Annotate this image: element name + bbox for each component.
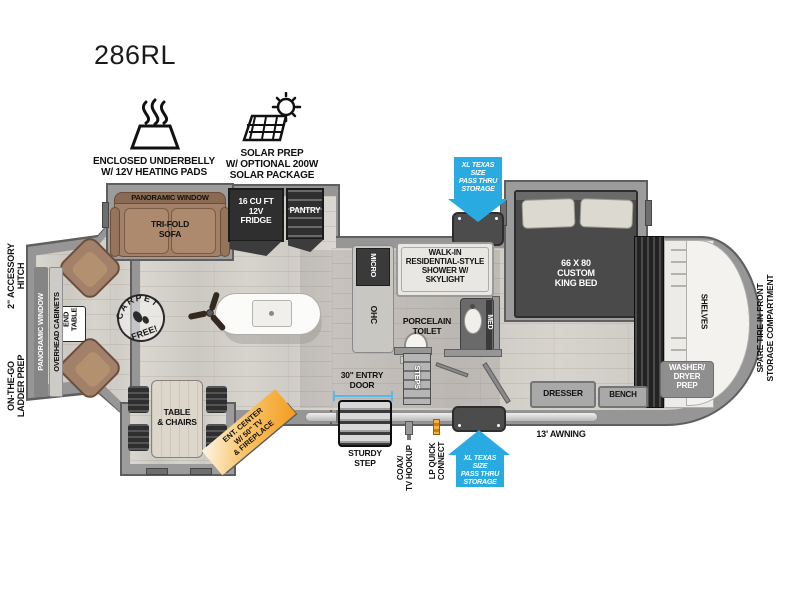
pass-thru-top-arrow-body: XL TEXAS SIZE PASS THRU STORAGE	[454, 157, 502, 199]
recliner-bottom-cushion	[73, 350, 113, 390]
heating-pads-icon	[126, 96, 184, 152]
wall-bath-south	[444, 349, 502, 357]
fridge-label: 16 CU FT 12V FRIDGE	[228, 197, 284, 226]
dinette-chair-1	[128, 386, 149, 413]
pass-thru-bottom-latch-2	[497, 424, 500, 427]
overhead-cabinets-strip: OVERHEAD CABINETS	[49, 267, 63, 397]
shelves-label: SHELVES	[699, 285, 708, 337]
entry-door-dim-tick-left	[333, 391, 335, 401]
floorplan-286rl: 286RL ENCLOSED UNDERBELLY W/ 12V HEATING…	[0, 0, 800, 600]
washer-dryer-label: WASHER/ DRYER PREP	[660, 364, 714, 391]
pass-thru-top-label: XL TEXAS SIZE PASS THRU STORAGE	[454, 162, 502, 194]
lp-label: LP QUICK CONNECT	[429, 433, 451, 489]
coax-connector-icon	[405, 421, 413, 435]
pass-thru-bottom-arrow-body: XL TEXAS SIZE PASS THRU STORAGE	[456, 455, 504, 487]
pass-thru-bottom-box	[452, 406, 506, 432]
recliner-top-cushion	[70, 250, 110, 290]
dresser-label: DRESSER	[530, 389, 596, 399]
ohc-label: OHC	[368, 295, 378, 335]
entry-door-dimension-line	[334, 395, 392, 397]
bench-label: BENCH	[598, 391, 648, 400]
ladder-prep-label: ON-THE-GO LADDER PREP	[6, 334, 30, 438]
bed-pillow-left	[522, 198, 576, 229]
page-title: 286RL	[94, 40, 176, 71]
bed-slide-window-right	[645, 200, 652, 226]
coax-label: COAX/ TV HOOKUP	[397, 437, 419, 499]
bed-label: 66 X 80 CUSTOM KING BED	[520, 258, 632, 288]
ceiling-fan-icon	[186, 289, 234, 337]
toilet-label: PORCELAIN TOILET	[396, 317, 458, 336]
dinette-window-right	[190, 468, 212, 475]
sofa-label: TRI-FOLD SOFA	[134, 220, 206, 239]
sturdy-step	[338, 400, 392, 447]
spare-tire-label: SPARE TIRE IN FRONT STORAGE COMPARTMENT	[756, 242, 780, 414]
sofa-armrest-left	[110, 207, 120, 257]
pantry-label: PANTRY	[284, 207, 326, 216]
med-label: MED	[485, 307, 493, 337]
med-faucet	[470, 304, 475, 309]
bed-pillow-right	[580, 198, 634, 229]
accessory-hitch-label: 2" ACCESSORY HITCH	[6, 230, 30, 322]
island-faucet	[269, 311, 274, 316]
micro-label: MICRO	[369, 245, 377, 285]
pass-thru-bottom-arrow-head	[448, 430, 510, 455]
awning-label: 13' AWNING	[524, 429, 598, 439]
steps-label: STEPS	[413, 354, 421, 400]
solar-label: SOLAR PREP W/ OPTIONAL 200W SOLAR PACKAG…	[210, 148, 334, 182]
dinette-window-left	[146, 468, 168, 475]
sofa-slide-window-left	[102, 202, 109, 228]
pass-thru-bottom-label: XL TEXAS SIZE PASS THRU STORAGE	[456, 455, 504, 487]
entry-door-dim-tick-right	[391, 391, 393, 401]
dinette-chair-2	[128, 424, 149, 451]
end-table-label: END TABLE	[63, 302, 80, 336]
underbelly-label: ENCLOSED UNDERBELLY W/ 12V HEATING PADS	[88, 156, 220, 178]
dinette-label: TABLE & CHAIRS	[151, 408, 203, 427]
rear-window-strip: PANORAMIC WINDOW	[34, 267, 48, 397]
sturdy-step-label: STURDY STEP	[332, 449, 398, 468]
solar-prep-icon	[240, 92, 304, 148]
shower-label: WALK-IN RESIDENTIAL-STYLE SHOWER W/ SKYL…	[398, 249, 492, 285]
dinette-chair-3	[206, 386, 227, 413]
pass-thru-top-latch-2	[495, 217, 498, 220]
entry-door-label: 30" ENTRY DOOR	[330, 371, 394, 390]
pass-thru-bottom-latch-1	[458, 424, 461, 427]
sofa-window-label: PANORAMIC WINDOW	[118, 194, 222, 202]
pass-thru-top-latch-1	[458, 217, 461, 220]
med-sink	[464, 308, 482, 334]
